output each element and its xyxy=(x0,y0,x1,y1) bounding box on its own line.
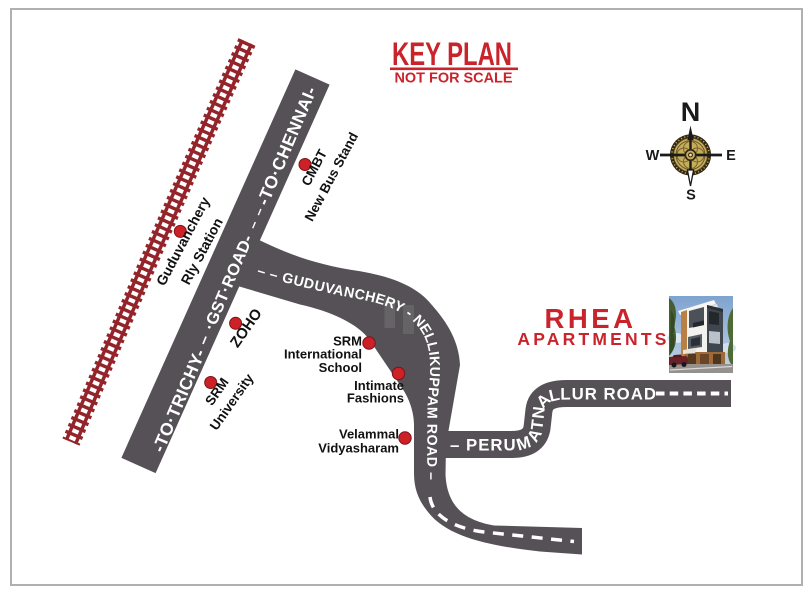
svg-text:E: E xyxy=(726,148,736,164)
svg-text:N: N xyxy=(681,97,701,127)
svg-text:Vidyasharam: Vidyasharam xyxy=(318,441,399,456)
svg-text:APARTMENTS: APARTMENTS xyxy=(517,329,669,349)
svg-text:Fashions: Fashions xyxy=(347,391,404,406)
svg-text:Velammal: Velammal xyxy=(339,427,399,442)
svg-text:KEY PLAN: KEY PLAN xyxy=(392,36,512,72)
svg-text:S: S xyxy=(686,188,696,204)
svg-text:W: W xyxy=(646,148,660,164)
svg-text:NOT FOR SCALE: NOT FOR SCALE xyxy=(395,70,513,87)
svg-text:School: School xyxy=(319,360,362,375)
